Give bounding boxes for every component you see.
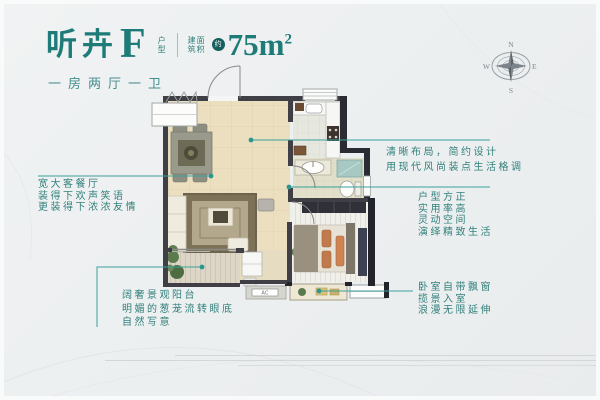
- note-line: 清晰布局，简约设计: [386, 146, 524, 161]
- plan-type-char: 户: [158, 36, 167, 45]
- area-number: 75m: [228, 27, 285, 62]
- connector-dot-baywindow: [317, 289, 322, 294]
- note-line: 明媚的葱茏流转眼底: [122, 303, 235, 317]
- area-label-line: 建面: [188, 36, 206, 45]
- note-shape: 户型方正 实用率高 灵动空间 演绎精致生活: [418, 192, 493, 238]
- ac-label: AC: [262, 291, 269, 297]
- note-line: 揽景入室: [418, 294, 493, 306]
- plan-letter: F: [120, 26, 146, 64]
- floor-plan: AC: [152, 66, 389, 300]
- plan-title: 听卉: [46, 29, 118, 60]
- plan-subtitle: 一房两厅一卫: [48, 73, 292, 92]
- note-line: 实用率高: [418, 204, 493, 216]
- header: 听卉 F 户 型 建面 筑积 约 75m2 一房两厅一卫: [46, 26, 292, 92]
- compass-e: E: [532, 62, 537, 71]
- plan-type-char: 型: [158, 45, 167, 54]
- connector-dot-living: [209, 174, 214, 179]
- poster: N S W E: [0, 0, 600, 400]
- note-layout: 清晰布局，简约设计 用现代风尚装点生活格调: [386, 146, 524, 175]
- compass-n: N: [508, 40, 514, 49]
- note-line: 演绎精致生活: [418, 227, 493, 239]
- area-label: 建面 筑积: [188, 36, 206, 54]
- note-line: 宽大客餐厅: [38, 179, 138, 191]
- connector-dot-balcony: [200, 265, 205, 270]
- header-divider: [177, 33, 178, 57]
- note-line: 用现代风尚装点生活格调: [386, 161, 524, 176]
- note-line: 自然写意: [122, 316, 235, 330]
- note-line: 浪漫无限延伸: [418, 305, 493, 317]
- note-line: 户型方正: [418, 192, 493, 204]
- area-value: 75m2: [228, 29, 292, 60]
- note-living-room: 宽大客餐厅 装得下欢声笑语 更装得下浓浓友情: [38, 179, 138, 214]
- note-bedroom: 卧室自带飘窗 揽景入室 浪漫无限延伸: [418, 282, 493, 317]
- note-balcony: 阔奢景观阳台 明媚的葱茏流转眼底 自然写意: [122, 289, 235, 330]
- compass-s: S: [509, 86, 513, 95]
- ac-platform: AC: [246, 286, 286, 299]
- title-row: 听卉 F 户 型 建面 筑积 约 75m2: [46, 26, 292, 64]
- connector-dot-kitchen: [249, 138, 254, 143]
- note-line: 装得下欢声笑语: [38, 191, 138, 203]
- dining-set: [171, 124, 212, 182]
- area-superscript: 2: [284, 32, 292, 48]
- note-line: 阔奢景观阳台: [122, 289, 235, 303]
- note-line: 卧室自带飘窗: [418, 282, 493, 294]
- note-line: 更装得下浓浓友情: [38, 202, 138, 214]
- connector-dot-hall: [287, 185, 292, 190]
- compass-w: W: [483, 62, 491, 71]
- note-line: 灵动空间: [418, 215, 493, 227]
- compass: N S W E: [483, 40, 537, 95]
- area-label-line: 筑积: [188, 45, 206, 54]
- plan-type-label: 户 型: [158, 36, 167, 54]
- approx-badge: 约: [212, 38, 225, 51]
